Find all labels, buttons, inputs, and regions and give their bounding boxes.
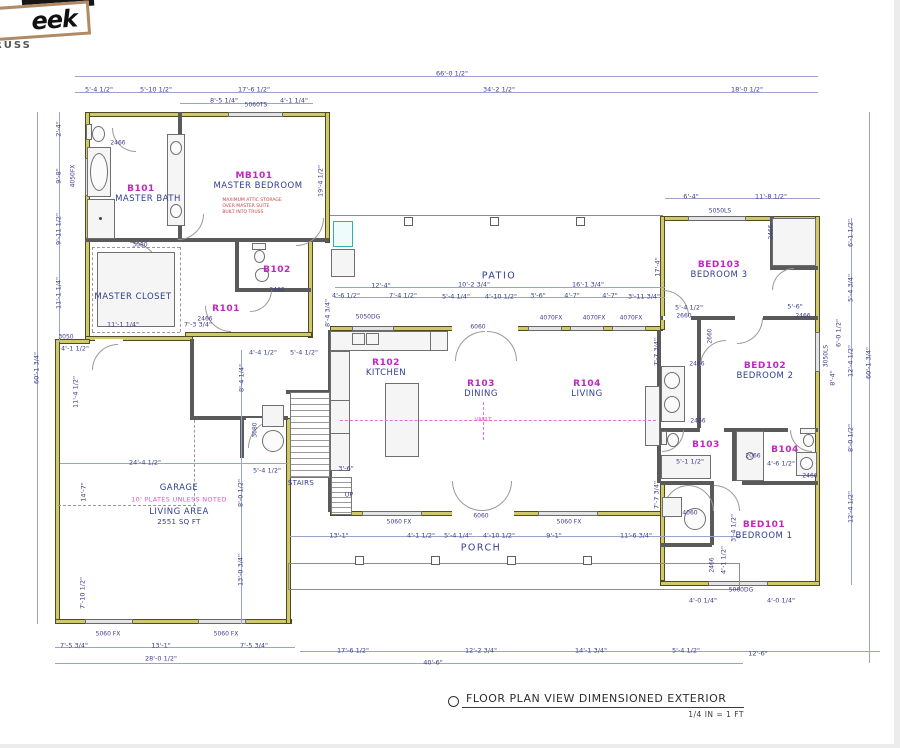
window (528, 326, 562, 331)
size-label: 5060 FX (96, 632, 121, 639)
dimension-label: 6'-0 1/2" (835, 319, 842, 347)
utility-box (262, 405, 284, 427)
porch-column (355, 556, 364, 565)
closet-dashed-line (92, 332, 180, 333)
door-swing-arc (714, 485, 740, 511)
dimension-label: 5'-6" (787, 303, 802, 310)
dimension-label: 3'-4 1/2" (730, 514, 737, 542)
window (708, 581, 768, 586)
dimension-label: 7'-5 3/4" (240, 642, 268, 649)
sink-icon (170, 141, 182, 155)
dimension-line (180, 103, 313, 104)
interior-wall (770, 266, 818, 270)
size-label: 5060 FX (214, 632, 239, 639)
dimension-label: 8'-4" (829, 370, 836, 385)
dimension-line (75, 76, 818, 77)
door-swing-arc (92, 344, 118, 370)
door-swing-arc (772, 268, 794, 290)
toilet-bowl (92, 126, 105, 142)
company-logo: eek RUSS (0, 0, 112, 58)
water-heater-icon (262, 430, 284, 452)
room-name-label: LIVING (571, 390, 603, 400)
porch-column (583, 556, 592, 565)
porch-edge (288, 589, 740, 590)
sink-icon (800, 457, 813, 470)
dimension-label: 4'-7" (602, 292, 617, 299)
sink-icon (170, 204, 182, 218)
interior-wall (235, 288, 311, 292)
dimension-line (37, 112, 38, 624)
exterior-wall (55, 339, 60, 624)
kitchen-sink-icon (366, 333, 379, 345)
window (570, 326, 604, 331)
toilet-bowl (254, 250, 265, 263)
porch-edge (288, 563, 289, 590)
size-label: 5050DG (356, 315, 381, 322)
exterior-wall (325, 112, 330, 243)
dimension-label: 4'-1 1/2" (61, 345, 89, 352)
porch-column (507, 556, 516, 565)
bathtub-icon (661, 455, 711, 479)
dimension-line (335, 297, 665, 298)
dimension-label: 4'-4 1/2" (249, 349, 277, 356)
room-name-label: MASTER BEDROOM (213, 182, 302, 192)
interior-wall (190, 339, 194, 419)
shower-drain (746, 452, 754, 460)
title-underline (462, 707, 744, 708)
room-name-label: DINING (464, 390, 498, 400)
dimension-label: 19'-4 1/2" (317, 165, 324, 197)
room-name-label: BEDROOM 1 (736, 532, 793, 542)
size-label: 4070FX (620, 316, 643, 323)
window (688, 216, 746, 221)
size-label: 4050FX (71, 165, 78, 188)
dimension-line (55, 647, 295, 648)
door-opening (452, 326, 518, 331)
window (362, 511, 422, 516)
floor-plan-sheet: eek RUSS B101MASTER BATHMB101MASTER BEDR… (0, 0, 900, 748)
room-name-label: BEDROOM 2 (737, 372, 794, 382)
door-swing-arc (250, 290, 272, 312)
dimension-label: 4'-6 1/2" (767, 460, 795, 467)
kitchen-sink-icon (352, 333, 365, 345)
door-swing-arc (452, 481, 482, 511)
dimension-label: 14'-7" (80, 482, 87, 502)
dimension-label: 4'-7" (564, 292, 579, 299)
closet-shelves (772, 218, 816, 266)
sink-icon (664, 396, 680, 413)
porch-edge (739, 563, 740, 590)
door-opening (95, 339, 123, 344)
stairs-treads (331, 477, 352, 515)
patio-column (404, 217, 413, 226)
room-id-label: B104 (771, 445, 799, 455)
dimension-line (330, 92, 818, 93)
room-name-label: LIVING AREA (149, 508, 209, 518)
dimension-label: 8'-4 3/4" (324, 299, 331, 327)
dimension-label: 13'-1" (151, 642, 171, 649)
dimension-label: 11'-8 1/2" (755, 193, 787, 200)
view-marker-icon (448, 696, 459, 707)
note-red-label: MAXIMUM ATTIC STORAGE OVER MASTER SUITE … (222, 198, 281, 216)
dimension-label: 4'-1 1/2" (720, 546, 727, 574)
room-name-label: GARAGE (160, 484, 199, 494)
dimension-label: 11'-4 1/2" (72, 376, 79, 408)
room-id-label: R103 (467, 379, 495, 389)
closet-dashed-line (92, 247, 93, 332)
outdoor-counter (331, 249, 355, 277)
closet-dashed-line (92, 247, 180, 248)
sink-icon (664, 372, 680, 389)
door-swing-arc (663, 290, 689, 316)
dimension-label: 3'-6" (530, 292, 545, 299)
note-pink-label: 10' PLATES UNLESS NOTED (131, 496, 227, 503)
dimension-label: 5'-4 1/2" (290, 349, 318, 356)
window (228, 112, 283, 117)
exterior-wall (55, 339, 90, 344)
logo-subtext: RUSS (0, 40, 32, 51)
vault-line (483, 402, 484, 440)
logo-badge: eek (0, 0, 91, 41)
room-name-label: KITCHEN (366, 369, 406, 379)
water-heater-icon (684, 508, 706, 530)
dimension-line (55, 663, 743, 664)
size-label: 3050LS (824, 345, 831, 367)
dimension-line (59, 112, 60, 342)
door-swing-arc (205, 306, 231, 332)
dimension-line (241, 350, 242, 624)
stairs-treads (290, 392, 330, 478)
dimension-line (665, 198, 820, 199)
patio-column (490, 217, 499, 226)
exterior-wall (85, 112, 330, 117)
dimension-line (335, 287, 665, 288)
door-swing-arc (700, 340, 726, 366)
dimension-label: 7'-10 1/2" (79, 577, 86, 609)
dimension-label: 28'-0 1/2" (145, 655, 177, 662)
window (198, 619, 246, 624)
scale-note: 1/4 IN = 1 FT (462, 710, 744, 719)
dimension-label: 4'-0 1/4" (689, 597, 717, 604)
garage-dashed-line (58, 505, 196, 506)
room-id-label: R104 (573, 379, 601, 389)
toilet-bowl (803, 434, 814, 447)
dimension-label: 4'-6 1/2" (332, 292, 360, 299)
kitchen-counter (330, 331, 442, 351)
dimension-label: 8'-4 1/4" (238, 364, 245, 392)
size-label: 4070FX (540, 316, 563, 323)
size-label: 2466 (710, 557, 717, 572)
fireplace-icon (645, 386, 660, 446)
dimension-line (290, 536, 740, 537)
door-swing-arc (737, 318, 763, 344)
window (815, 332, 820, 372)
size-label: 5060 FX (557, 520, 582, 527)
dimension-label: 4'-0 1/4" (767, 597, 795, 604)
bathtub-basin (90, 153, 108, 191)
room-name-label: BEDROOM 3 (691, 271, 748, 281)
closet-shelves (97, 252, 175, 327)
interior-wall (235, 242, 239, 292)
window (85, 619, 133, 624)
room-id-label: B103 (692, 440, 720, 450)
window (612, 326, 646, 331)
dimension-label: 5'-4 1/2" (253, 467, 281, 474)
toilet-bowl (667, 433, 679, 447)
area-label: PORCH (461, 544, 502, 555)
size-label: 2660 (708, 328, 715, 343)
size-label: 4070FX (583, 316, 606, 323)
dimension-label: 6'-4" (683, 193, 698, 200)
dimension-line (75, 92, 330, 93)
interior-wall (660, 543, 712, 547)
exterior-wall (185, 332, 312, 337)
room-name-label: STAIRS (288, 479, 314, 487)
dimension-label: 7'-4 1/2" (389, 292, 417, 299)
door-swing-arc (112, 128, 136, 152)
room-name-label: 2551 SQ FT (157, 518, 200, 526)
dimension-label: 12'-4" (371, 282, 391, 289)
room-id-label: B101 (127, 184, 155, 194)
dimension-line (300, 651, 880, 652)
room-id-label: BED102 (744, 361, 786, 371)
dimension-label: 7'-5 3/4" (60, 642, 88, 649)
area-label: PATIO (482, 272, 516, 283)
patio-edge (330, 215, 663, 216)
exterior-wall (815, 216, 820, 586)
interior-wall (85, 238, 329, 242)
patio-column (576, 217, 585, 226)
door-opening (663, 316, 691, 320)
dimension-line (869, 112, 870, 663)
size-label: 5050LS (709, 209, 731, 216)
room-id-label: BED101 (743, 520, 785, 530)
logo-text: eek (31, 4, 78, 35)
closet-dashed-line (180, 247, 181, 332)
interior-wall (697, 316, 701, 430)
room-id-label: MB101 (235, 171, 272, 181)
fridge-icon (430, 331, 448, 351)
door-swing-arc (482, 481, 512, 511)
vault-line (340, 420, 656, 421)
door-opening (452, 511, 514, 516)
room-id-label: R102 (372, 358, 400, 368)
shower-drain (99, 217, 102, 220)
dimension-line (851, 218, 852, 585)
door-swing-arc (487, 331, 517, 361)
room-id-label: BED103 (698, 260, 740, 270)
door-opening (700, 428, 724, 432)
view-title: FLOOR PLAN VIEW DIMENSIONED EXTERIOR (466, 692, 726, 705)
porch-column (431, 556, 440, 565)
dimension-line (60, 463, 288, 464)
window (538, 511, 598, 516)
washer-icon (662, 497, 682, 517)
sink-icon (255, 268, 269, 282)
size-label: 5060 FX (387, 520, 412, 527)
toilet-icon (252, 243, 266, 250)
dimension-label: 7'-3 3/4" (184, 321, 212, 328)
stove-icon (330, 400, 350, 434)
grill-icon (333, 221, 353, 247)
door-swing-arc (455, 331, 485, 361)
